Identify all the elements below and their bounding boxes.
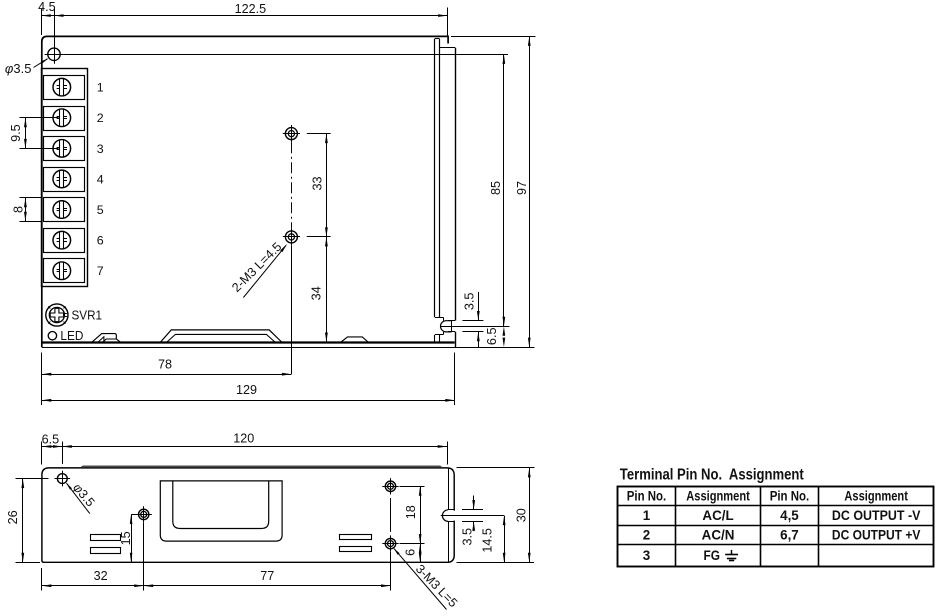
svg-text:Assignment: Assignment [844,489,908,504]
svg-text:129: 129 [236,383,257,397]
svg-text:6,7: 6,7 [780,527,799,542]
svg-text:32: 32 [94,569,108,583]
svg-text:33: 33 [311,176,325,190]
svg-text:6.5: 6.5 [485,328,499,346]
svg-text:15: 15 [119,531,133,545]
svg-text:4: 4 [97,172,104,186]
svg-text:3: 3 [97,142,104,156]
svg-text:8: 8 [11,206,25,213]
svg-text:3.5: 3.5 [460,528,474,546]
svg-text:18: 18 [404,505,418,519]
svg-text:7: 7 [97,264,104,278]
svg-text:DC OUTPUT +V: DC OUTPUT +V [832,527,921,542]
svg-text:LED: LED [60,328,83,343]
svg-text:14.5: 14.5 [481,528,495,553]
svg-text:SVR1: SVR1 [72,308,103,323]
svg-text:6: 6 [404,549,418,556]
svg-text:1: 1 [643,508,651,523]
svg-text:77: 77 [260,569,274,583]
svg-text:DC OUTPUT -V: DC OUTPUT -V [832,508,921,523]
svg-text:3: 3 [643,548,650,563]
svg-text:2: 2 [643,527,650,542]
svg-text:Assignment: Assignment [686,489,750,504]
svg-text:AC/L: AC/L [702,508,733,523]
svg-text:122.5: 122.5 [235,2,267,16]
svg-text:3.5: 3.5 [462,293,476,311]
svg-text:1: 1 [97,81,104,95]
svg-text:26: 26 [6,510,20,524]
svg-text:Pin No.: Pin No. [770,489,810,504]
svg-text:Pin No.: Pin No. [627,489,667,504]
svg-text:4,5: 4,5 [780,508,799,523]
svg-text:34: 34 [310,286,324,300]
svg-text:6: 6 [97,234,104,248]
svg-text:30: 30 [514,508,528,522]
svg-text:120: 120 [233,431,254,445]
svg-text:85: 85 [489,181,503,195]
svg-text:AC/N: AC/N [702,527,735,542]
svg-text:78: 78 [158,357,172,371]
svg-text:2: 2 [97,111,104,125]
svg-text:4.5: 4.5 [38,0,56,14]
svg-text:6.5: 6.5 [42,432,60,446]
svg-text:5: 5 [97,203,104,217]
svg-text:97: 97 [515,181,529,195]
svg-text:FG: FG [703,548,720,563]
svg-text:9.5: 9.5 [9,124,23,142]
svg-text:Terminal Pin No. Assignment: Terminal Pin No. Assignment [620,467,804,484]
svg-text:φ3.5: φ3.5 [5,62,32,76]
